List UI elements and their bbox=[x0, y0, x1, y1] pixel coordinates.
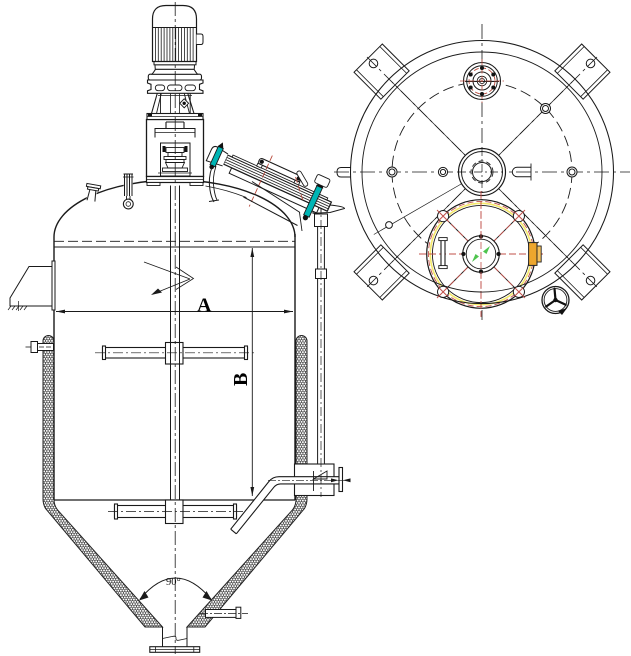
svg-text:90°: 90° bbox=[166, 577, 181, 588]
svg-text:A: A bbox=[197, 295, 212, 317]
svg-text:B: B bbox=[230, 373, 252, 386]
